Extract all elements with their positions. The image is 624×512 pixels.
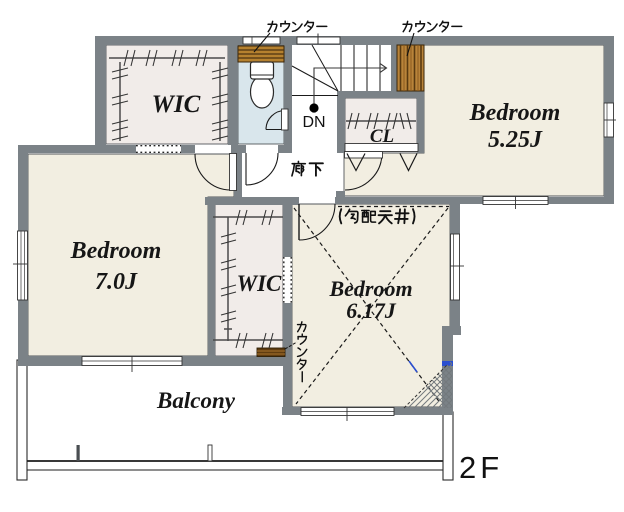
svg-text:CL: CL — [370, 126, 394, 147]
svg-text:WIC: WIC — [237, 271, 282, 296]
svg-text:6.17J: 6.17J — [346, 298, 397, 323]
svg-text:Balcony: Balcony — [156, 388, 236, 413]
svg-text:5.25J: 5.25J — [488, 127, 543, 153]
svg-text:7.0J: 7.0J — [95, 269, 138, 295]
svg-text:2F: 2F — [459, 450, 503, 485]
svg-text:Bedroom: Bedroom — [70, 238, 162, 264]
svg-text:DN: DN — [302, 114, 325, 131]
svg-text:WIC: WIC — [152, 91, 201, 118]
svg-text:Bedroom: Bedroom — [469, 100, 561, 126]
